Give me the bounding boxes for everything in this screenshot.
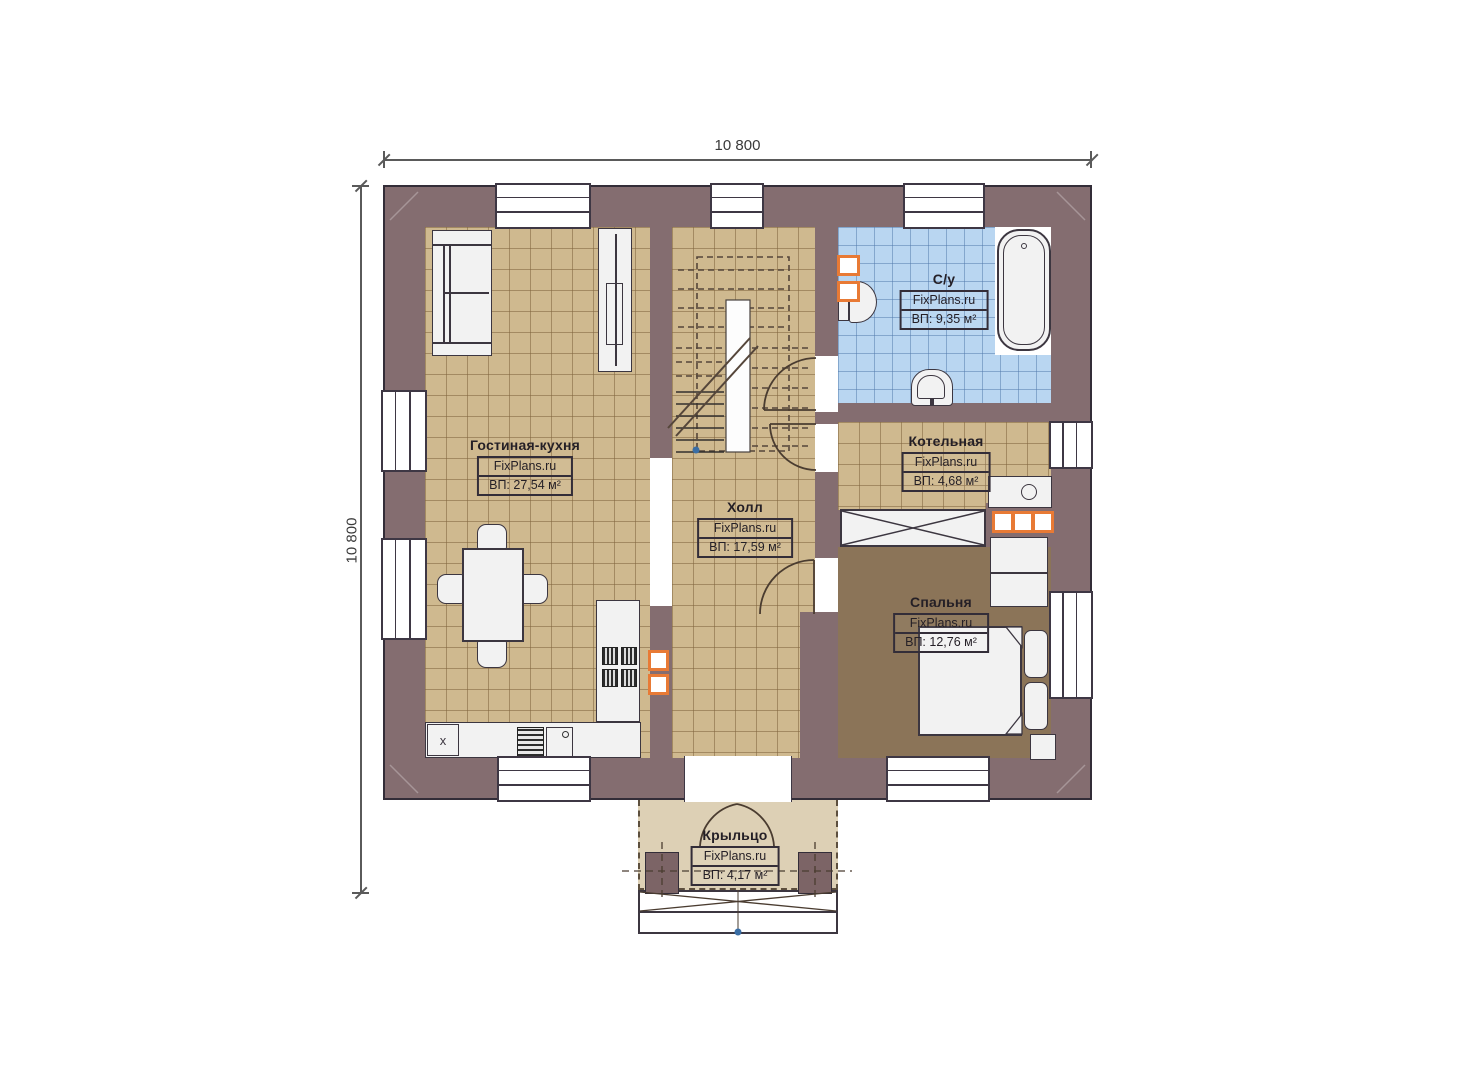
room-name: С/у xyxy=(900,271,989,287)
room-name: Гостиная-кухня xyxy=(470,437,580,453)
room-area: ВП: 4,17 м² xyxy=(693,867,778,884)
window-top-hall xyxy=(710,183,764,229)
room-name: Холл xyxy=(697,499,793,515)
pillow-top xyxy=(1024,630,1048,678)
room-info-box: FixPlans.ru ВП: 4,68 м² xyxy=(902,452,991,492)
vent-bathroom-wall-1 xyxy=(837,255,860,276)
nightstand xyxy=(1030,734,1056,760)
dimension-left-label: 10 800 xyxy=(344,501,361,581)
dining-chair-left xyxy=(437,574,464,604)
dining-chair-right xyxy=(521,574,548,604)
door-opening-boiler xyxy=(815,424,838,472)
wall-hall-bedroom-stub xyxy=(800,612,838,758)
door-opening-bathroom xyxy=(815,356,838,412)
dining-chair-bottom xyxy=(477,640,507,668)
room-label-bedroom: Спальня FixPlans.ru ВП: 12,76 м² xyxy=(893,594,989,653)
vent-kitchen-wall-1 xyxy=(648,650,669,671)
pillow-bottom xyxy=(1024,682,1048,730)
room-brand: FixPlans.ru xyxy=(895,615,987,634)
entrance-door-opening xyxy=(684,756,792,802)
room-hall-floor xyxy=(672,227,815,758)
room-brand: FixPlans.ru xyxy=(479,458,571,477)
dimension-top-line xyxy=(383,159,1092,161)
stove-burner-4 xyxy=(621,669,637,687)
kitchen-sink xyxy=(546,727,573,757)
room-info-box: FixPlans.ru ВП: 17,59 м² xyxy=(697,518,793,558)
vent-bedroom-wall-2 xyxy=(1012,511,1034,533)
stove-burner-3 xyxy=(602,669,618,687)
room-brand: FixPlans.ru xyxy=(902,292,987,311)
window-left-upper xyxy=(381,390,427,472)
bathroom-sink xyxy=(911,369,953,406)
room-info-box: FixPlans.ru ВП: 4,17 м² xyxy=(691,846,780,886)
room-brand: FixPlans.ru xyxy=(904,454,989,473)
vent-bedroom-wall-1 xyxy=(992,511,1014,533)
stove-burner-2 xyxy=(621,647,637,665)
window-right-bedroom xyxy=(1049,591,1093,699)
room-brand: FixPlans.ru xyxy=(693,848,778,867)
dining-chair-top xyxy=(477,524,507,550)
porch-step-edge xyxy=(638,911,838,913)
room-area: ВП: 9,35 м² xyxy=(902,311,987,328)
room-label-hall: Холл FixPlans.ru ВП: 17,59 м² xyxy=(697,499,793,558)
wardrobe xyxy=(990,537,1048,607)
door-opening-bedroom xyxy=(815,558,838,614)
vent-bedroom-wall-3 xyxy=(1032,511,1054,533)
window-bottom-living xyxy=(497,756,591,802)
vent-bathroom-wall-2 xyxy=(837,281,860,302)
room-name: Крыльцо xyxy=(691,827,780,843)
room-info-box: FixPlans.ru ВП: 12,76 м² xyxy=(893,613,989,653)
room-brand: FixPlans.ru xyxy=(699,520,791,539)
sofa xyxy=(432,230,492,356)
window-bottom-bedroom xyxy=(886,756,990,802)
window-top-bathroom xyxy=(903,183,985,229)
floor-plan-canvas: 10 800 10 800 x xyxy=(0,0,1473,1080)
boiler-counter xyxy=(988,476,1052,508)
room-label-living-kitchen: Гостиная-кухня FixPlans.ru ВП: 27,54 м² xyxy=(470,437,580,496)
dish-drainer xyxy=(517,727,544,757)
porch-post-right xyxy=(798,852,832,894)
closet xyxy=(840,509,986,547)
room-info-box: FixPlans.ru ВП: 9,35 м² xyxy=(900,290,989,330)
tv-unit xyxy=(598,228,632,372)
stove-burner-1 xyxy=(602,647,618,665)
porch-post-left xyxy=(645,852,679,894)
window-left-lower xyxy=(381,538,427,640)
room-label-boiler: Котельная FixPlans.ru ВП: 4,68 м² xyxy=(902,433,991,492)
room-area: ВП: 4,68 м² xyxy=(904,473,989,490)
room-name: Спальня xyxy=(893,594,989,610)
kitchen-corner-cabinet: x xyxy=(427,724,459,756)
window-right-boiler xyxy=(1049,421,1093,469)
window-top-living xyxy=(495,183,591,229)
vent-kitchen-wall-2 xyxy=(648,674,669,695)
room-label-porch: Крыльцо FixPlans.ru ВП: 4,17 м² xyxy=(691,827,780,886)
room-name: Котельная xyxy=(902,433,991,449)
dimension-top-label: 10 800 xyxy=(383,137,1092,154)
dining-table xyxy=(462,548,524,642)
bathtub xyxy=(997,229,1051,351)
room-area: ВП: 27,54 м² xyxy=(479,477,571,494)
room-area: ВП: 12,76 м² xyxy=(895,634,987,651)
room-label-bathroom: С/у FixPlans.ru ВП: 9,35 м² xyxy=(900,271,989,330)
opening-living-hall xyxy=(650,458,672,606)
kitchen-corner-mark: x xyxy=(440,733,447,748)
room-area: ВП: 17,59 м² xyxy=(699,539,791,556)
room-info-box: FixPlans.ru ВП: 27,54 м² xyxy=(477,456,573,496)
